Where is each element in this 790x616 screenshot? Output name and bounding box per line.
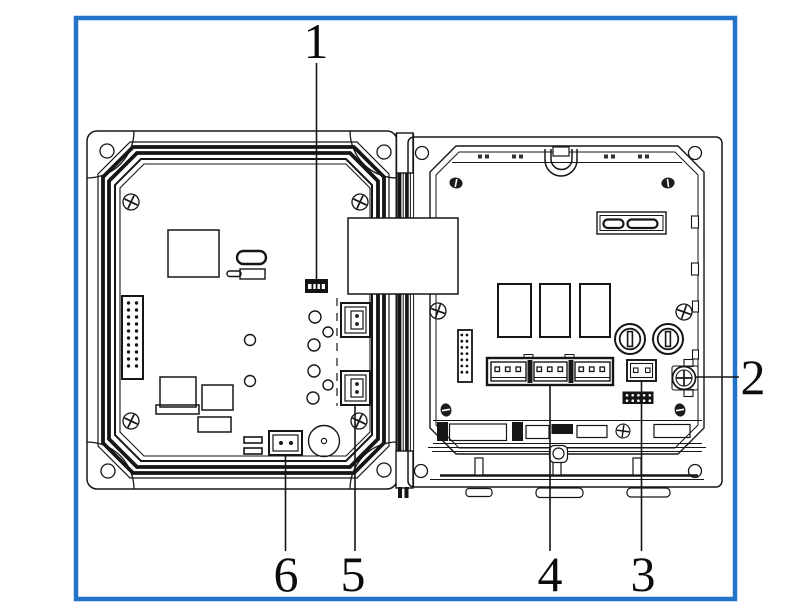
callout-label-5: 5 [341, 549, 366, 599]
solder-pads [245, 311, 334, 404]
wiring-cover-box [348, 218, 458, 294]
jumper-connector-1 [305, 279, 328, 293]
signal-bars [244, 437, 262, 454]
pin-header-left [122, 296, 143, 379]
base-foot-right [627, 488, 670, 497]
vent-slots [597, 212, 666, 234]
connector-3 [627, 360, 656, 381]
trimpot-left [615, 324, 645, 354]
base-inner-walls [430, 146, 704, 454]
relay-blocks-door [156, 377, 233, 432]
callout-label-6: 6 [274, 549, 299, 599]
base-panel [408, 137, 722, 498]
connector-6 [269, 431, 302, 455]
callout-label-2: 2 [741, 352, 766, 402]
hinge-block-bottom [396, 451, 413, 488]
pin-header-right [458, 330, 472, 382]
base-foot-left [466, 489, 492, 497]
door-panel [87, 131, 397, 489]
jumper-block [623, 392, 654, 405]
door-corner-tabs [87, 131, 397, 489]
ic-chip [168, 230, 219, 277]
trimpot-right [653, 324, 683, 354]
connector-5-upper [341, 303, 370, 337]
cable-channel [433, 421, 702, 444]
buzzer [309, 426, 340, 457]
hinge-column [396, 133, 414, 498]
ground-screw-2 [672, 360, 698, 397]
relay-footprints [498, 284, 610, 337]
crystal-component [227, 251, 266, 279]
terminal-blocks [487, 355, 613, 386]
connector-5-lower [341, 371, 370, 405]
hanger-clip [545, 147, 577, 176]
callout-label-4: 4 [538, 549, 563, 599]
door-screws [120, 191, 370, 431]
callout-label-3: 3 [631, 549, 656, 599]
base-foot-center [536, 488, 583, 498]
diagram-page: 1 2 3 4 5 6 [0, 0, 790, 616]
callout-label-1: 1 [304, 16, 329, 66]
base-screws [428, 301, 695, 439]
enclosure-technical-drawing [0, 0, 790, 616]
edge-latch-tabs [692, 216, 699, 359]
